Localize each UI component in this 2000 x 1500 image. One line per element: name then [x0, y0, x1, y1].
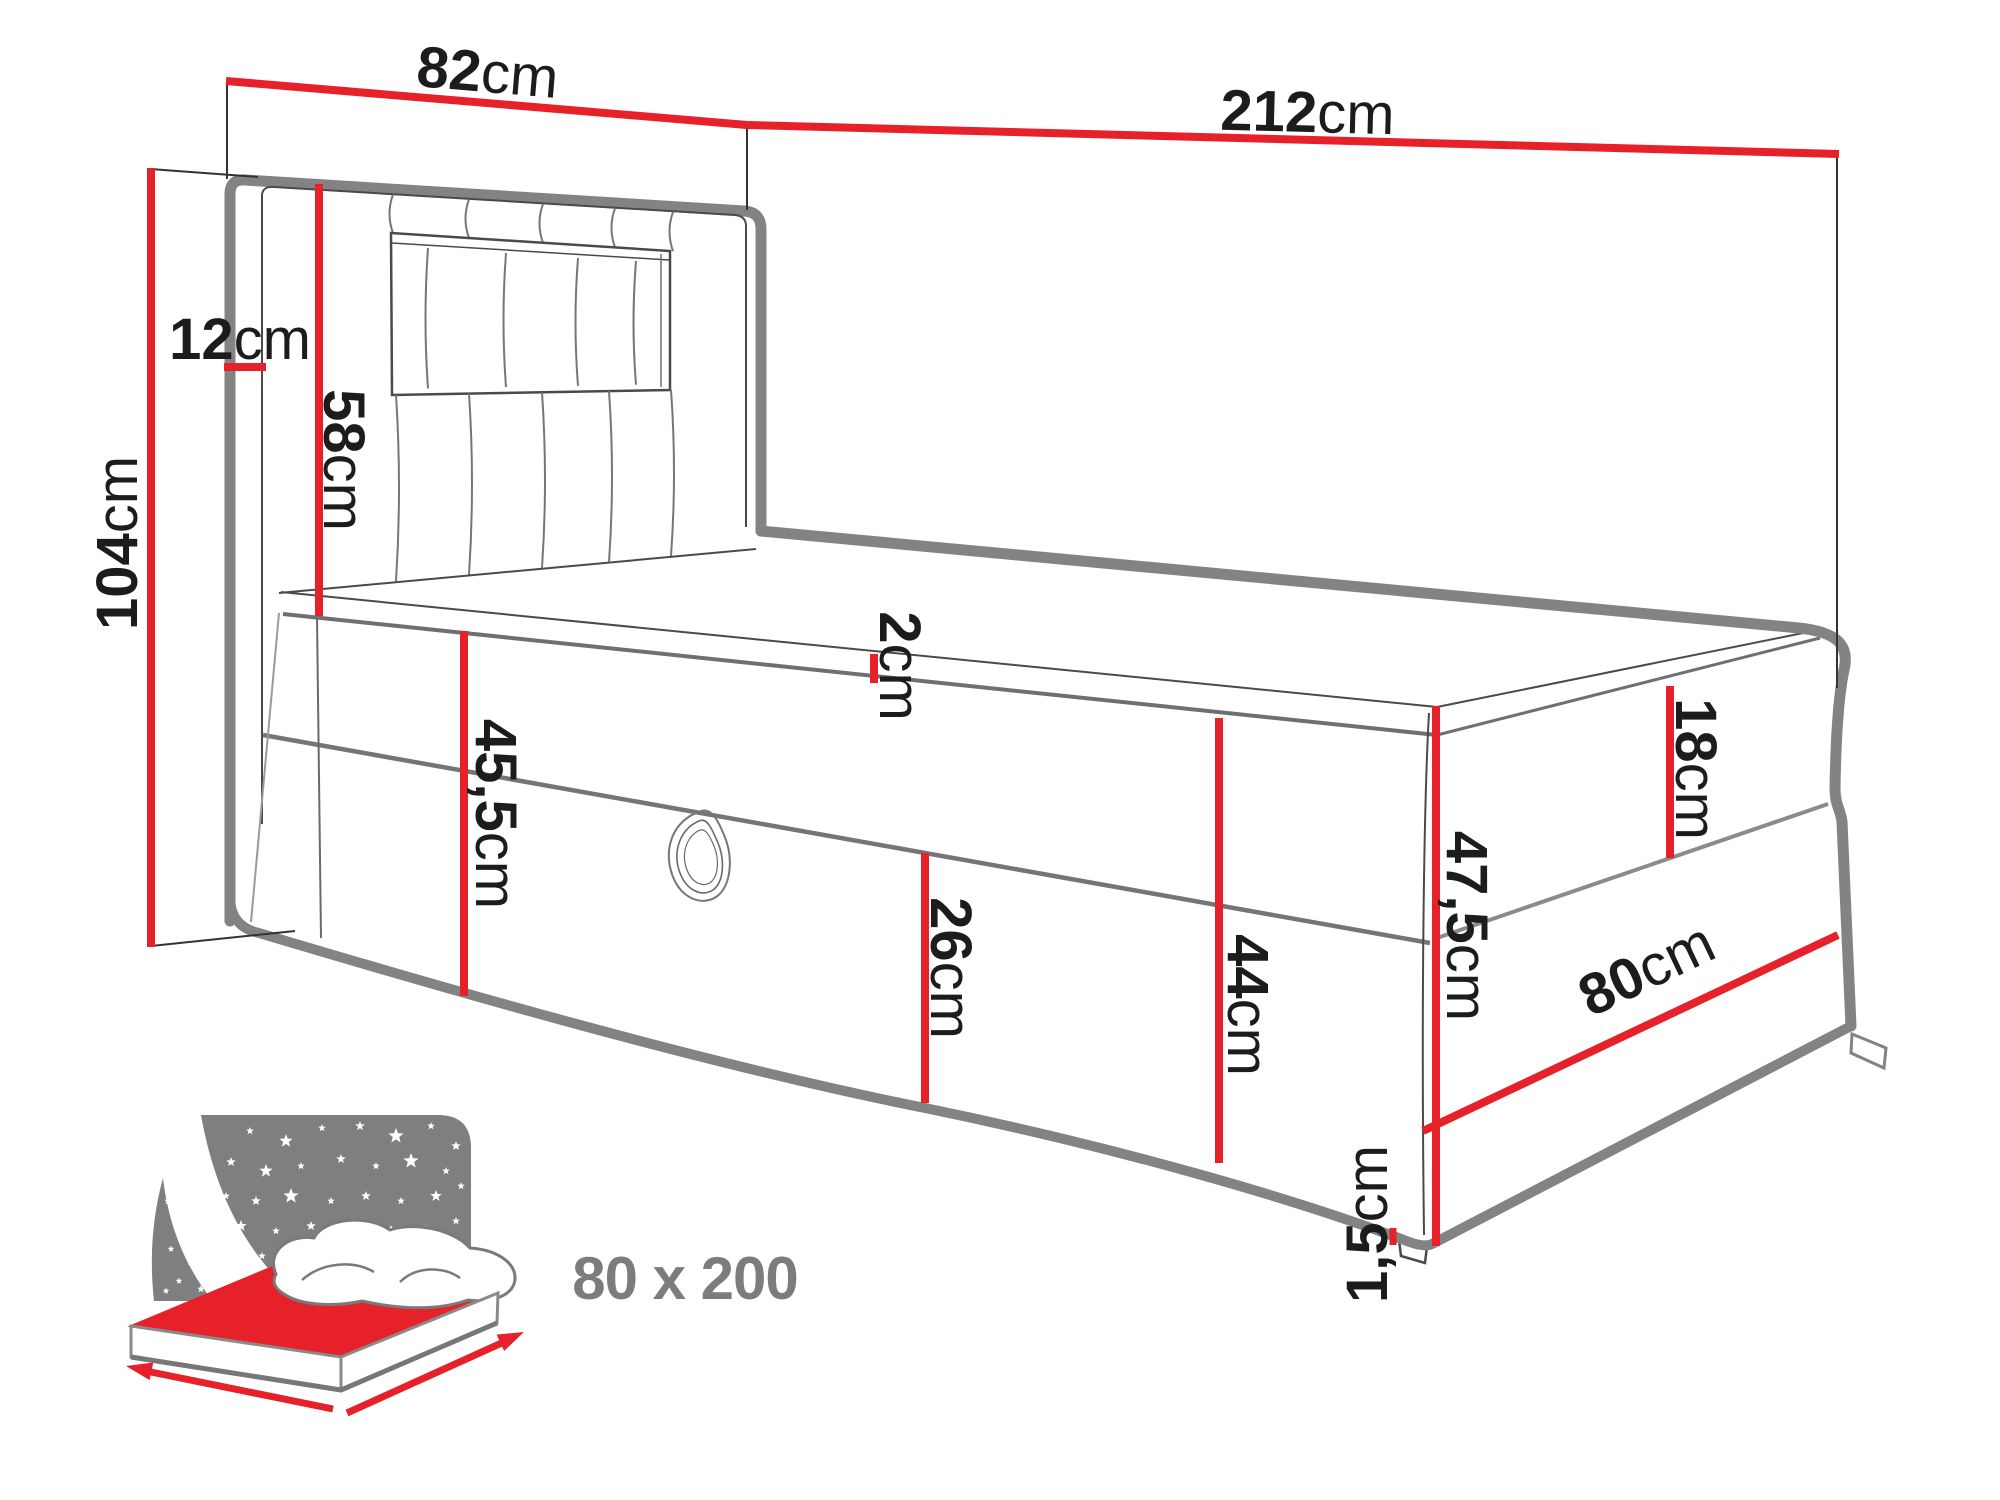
svg-text:82cm: 82cm	[414, 34, 561, 111]
svg-text:2cm: 2cm	[867, 611, 932, 721]
svg-text:1,5cm: 1,5cm	[1335, 1145, 1400, 1303]
svg-text:80 x 200: 80 x 200	[572, 1245, 798, 1312]
svg-text:44cm: 44cm	[1215, 934, 1280, 1076]
svg-text:212cm: 212cm	[1220, 78, 1396, 148]
svg-text:45,5cm: 45,5cm	[463, 719, 528, 909]
svg-text:104cm: 104cm	[85, 456, 150, 630]
svg-text:12cm: 12cm	[169, 307, 311, 372]
svg-text:26cm: 26cm	[918, 897, 983, 1039]
svg-text:47,5cm: 47,5cm	[1434, 831, 1499, 1021]
svg-text:58cm: 58cm	[311, 389, 376, 531]
svg-text:18cm: 18cm	[1663, 698, 1728, 840]
